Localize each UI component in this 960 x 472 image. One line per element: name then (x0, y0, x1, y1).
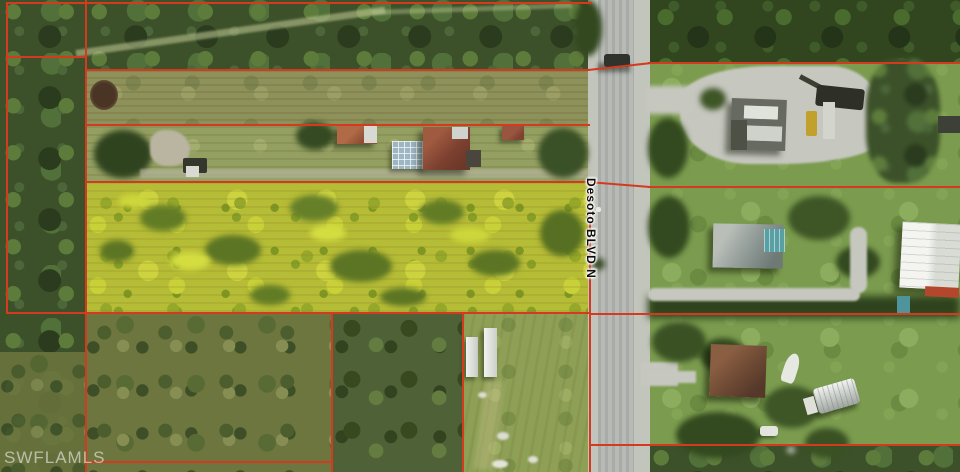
wooded-parcel-south (332, 313, 463, 472)
white-trailer (823, 102, 835, 139)
parcel-boundary-h3-west (86, 181, 590, 183)
tree-cluster (866, 58, 940, 183)
aerial-map: Desoto BLVD N SWFLAMLS (0, 0, 960, 472)
cleared-field-strip (86, 70, 592, 126)
debris-white (528, 456, 538, 463)
bush-clump (420, 200, 464, 224)
building-roof-white (364, 126, 377, 143)
dirt-pond (90, 80, 118, 110)
parcel-boundary-top (6, 2, 592, 4)
pool-enclosure (392, 141, 426, 169)
bush-clump (470, 250, 520, 276)
parcel-boundary-h4-east (590, 313, 960, 315)
gravel-driveway (646, 86, 696, 114)
debris-white (787, 447, 795, 453)
parcel-boundary-west (6, 2, 8, 314)
building-garage-white (452, 127, 468, 139)
tree-cluster (805, 428, 849, 458)
parcel-boundary-h4-west (6, 312, 590, 314)
debris-white (478, 392, 487, 398)
bush-clump (540, 210, 584, 256)
truck-trailer-white (186, 166, 199, 177)
outbuilding-dark (938, 116, 960, 133)
grass-highlight (118, 194, 148, 208)
parcel-boundary-h6 (86, 461, 333, 463)
driveway-track (140, 169, 590, 178)
tree-cluster (700, 88, 726, 110)
red-container (925, 286, 959, 298)
road-label: Desoto BLVD N (584, 178, 598, 279)
grass-highlight (170, 252, 210, 270)
tree-overhang-road (574, 0, 602, 56)
roof-wing-dark (731, 120, 747, 150)
grass-highlight (310, 225, 346, 241)
building-roof-small (502, 126, 524, 140)
gravel-driveway (648, 288, 860, 301)
tree-cluster (648, 118, 688, 178)
bush-clump (250, 285, 290, 305)
metal-roof-section (746, 125, 783, 141)
building-roof-brown-hip (709, 344, 767, 398)
debris-white (497, 432, 509, 440)
parcel-boundary-h3-east (648, 186, 960, 188)
bush-clump (290, 195, 338, 221)
tree-cluster (652, 322, 706, 362)
scrub-parcel-south (86, 313, 332, 472)
tree-cluster (296, 122, 334, 150)
parcel-boundary-h5-east (590, 444, 960, 446)
car-white (760, 426, 778, 436)
warehouse-white-roof (899, 222, 960, 291)
tree-cluster (648, 196, 690, 258)
pool-enclosure-teal (764, 229, 785, 252)
parcel-boundary-v3 (331, 313, 333, 472)
yellow-loader (806, 111, 817, 136)
forest-top-middle (86, 0, 592, 72)
tree-cluster (538, 128, 588, 178)
bush-clump (205, 235, 261, 265)
bush-clump (140, 205, 186, 231)
bush-clump (100, 240, 134, 262)
storage-trailer (466, 337, 478, 377)
watermark-swflamls: SWFLAMLS (4, 448, 106, 468)
bush-clump (330, 250, 392, 282)
shed-dark (466, 150, 481, 167)
parcel-boundary-h1-east (648, 62, 960, 64)
bush-clump (380, 288, 426, 306)
tree-cluster (788, 196, 850, 240)
parcel-boundary-h2 (86, 124, 590, 126)
forest-top-east (648, 0, 960, 66)
storage-trailer (484, 328, 497, 377)
gravel-driveway (850, 227, 867, 293)
tree-cluster (676, 412, 760, 458)
debris-white (492, 460, 508, 468)
gravel-driveway (648, 371, 696, 383)
highlighted-parcel (86, 182, 592, 313)
parcel-boundary-v4 (462, 313, 464, 472)
parcel-boundary-connector (6, 56, 86, 58)
metal-roof-section (744, 105, 778, 119)
parcel-boundary-h1-west (86, 69, 590, 71)
grass-highlight (450, 227, 490, 243)
